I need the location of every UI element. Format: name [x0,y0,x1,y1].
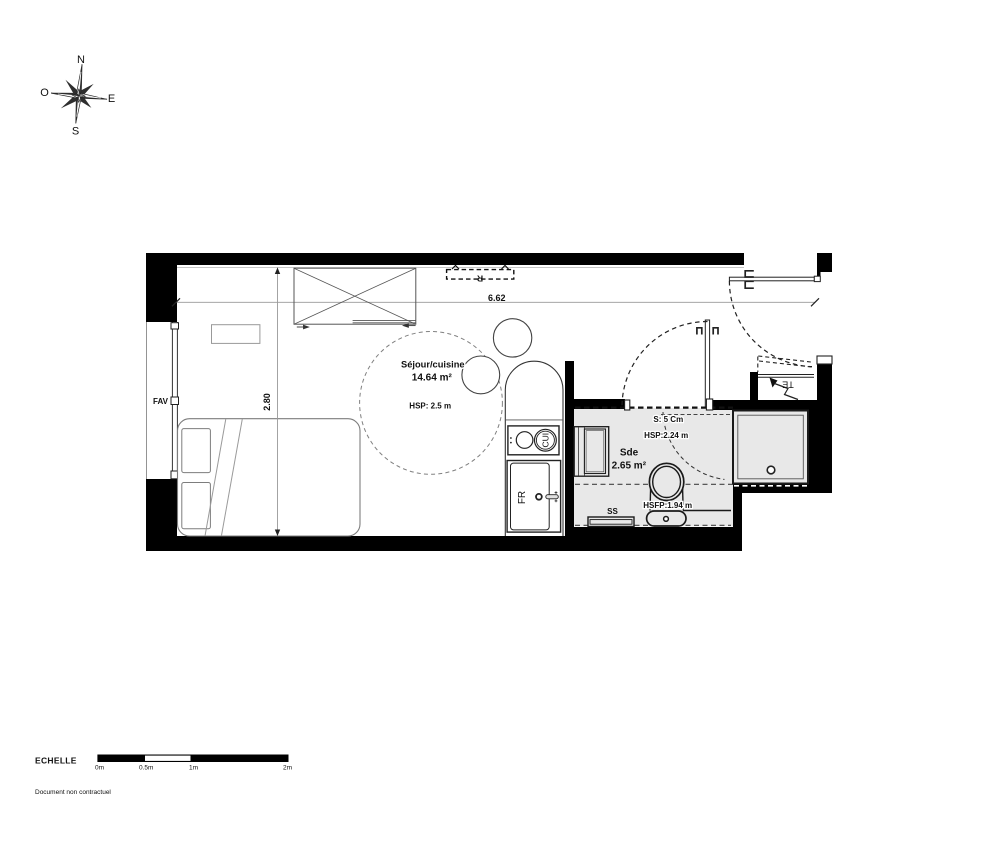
svg-text:SS: SS [607,507,618,516]
svg-text:O: O [40,87,49,99]
svg-text:E: E [108,93,115,105]
svg-text:Séjour/cuisine: Séjour/cuisine [401,360,465,370]
svg-text:N: N [77,54,85,66]
svg-text:ECHELLE: ECHELLE [35,756,77,766]
svg-text:2.65 m²: 2.65 m² [612,461,647,472]
svg-text:Document non contractuel: Document non contractuel [35,789,111,796]
svg-text:FAV: FAV [153,397,169,406]
svg-text:S: 5 Cm: S: 5 Cm [653,415,683,424]
svg-text:6.62: 6.62 [488,293,506,303]
svg-text:TE: TE [782,380,794,390]
svg-text:0m: 0m [95,765,104,772]
svg-text:0.5m: 0.5m [139,765,153,772]
svg-text:2.80: 2.80 [262,393,272,411]
svg-text:14.64 m²: 14.64 m² [412,372,453,383]
svg-text:CUI: CUI [540,433,550,448]
svg-text:HSFP:1.94 m: HSFP:1.94 m [643,501,692,510]
svg-text:S: S [72,125,79,137]
svg-text:R: R [477,274,483,284]
svg-text:HSP: 2.5 m: HSP: 2.5 m [409,402,451,411]
svg-text:2m: 2m [283,765,292,772]
svg-text:HSP:2.24 m: HSP:2.24 m [644,431,688,440]
svg-text:Sde: Sde [620,448,639,459]
svg-text:1m: 1m [189,765,198,772]
svg-text:FR: FR [517,491,528,504]
